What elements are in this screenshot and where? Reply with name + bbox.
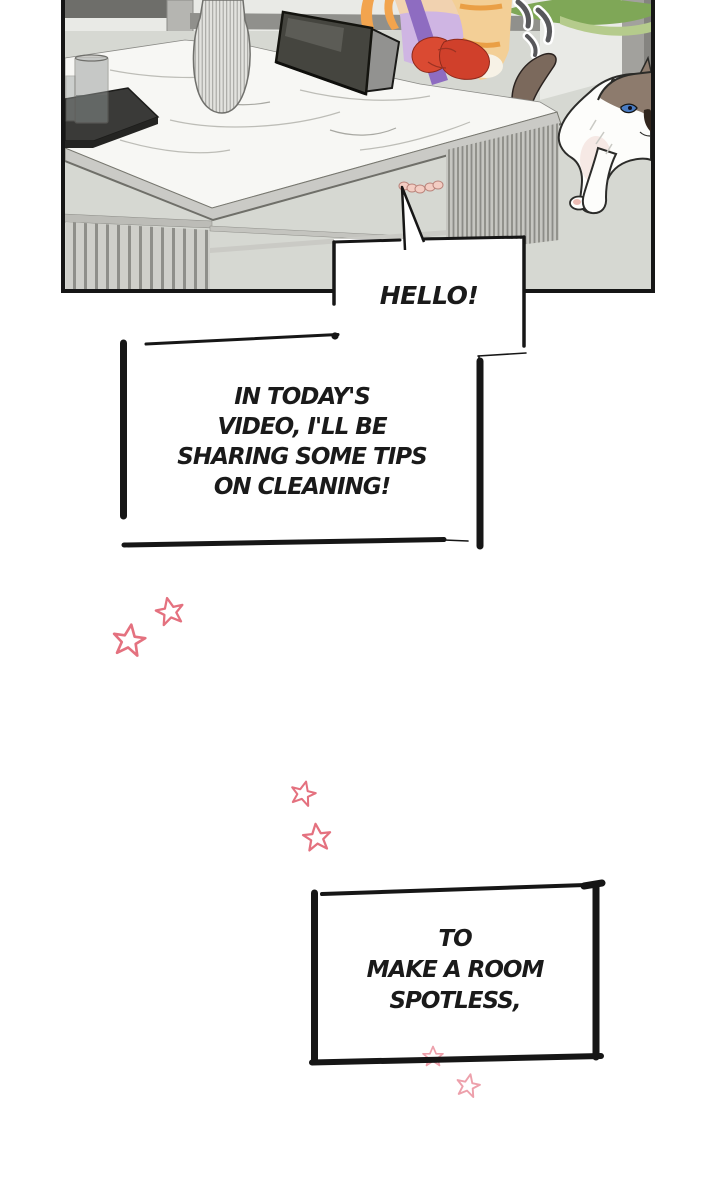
speech-line: TO xyxy=(318,924,592,955)
intro-caption-text: IN TODAY'S VIDEO, I'LL BE SHARING SOME T… xyxy=(126,382,478,502)
speech-line: IN TODAY'S xyxy=(126,382,478,412)
speech-line: SPOTLESS, xyxy=(318,986,592,1017)
closing-caption-text: TO MAKE A ROOM SPOTLESS, xyxy=(318,924,592,1017)
hello-speech-text: HELLO! xyxy=(334,276,524,316)
speech-line: MAKE A ROOM xyxy=(318,955,592,986)
speech-line: ON CLEANING! xyxy=(126,472,478,502)
cardigan-stripe xyxy=(460,6,502,8)
sparkle-star-icon xyxy=(289,779,318,807)
sparkle-star-icon xyxy=(302,822,332,850)
ribbed-vase xyxy=(193,0,250,113)
sparkle-star-icon xyxy=(455,1072,482,1098)
sparkle-star-icon xyxy=(112,622,147,656)
speech-line: VIDEO, I'LL BE xyxy=(126,412,478,442)
speech-line: HELLO! xyxy=(334,276,524,316)
comic-page: HELLO! IN TODAY'S VIDEO, I'LL BE SHARING… xyxy=(0,0,720,1204)
sparkle-star-icon xyxy=(154,595,186,626)
speech-line: SHARING SOME TIPS xyxy=(126,442,478,472)
